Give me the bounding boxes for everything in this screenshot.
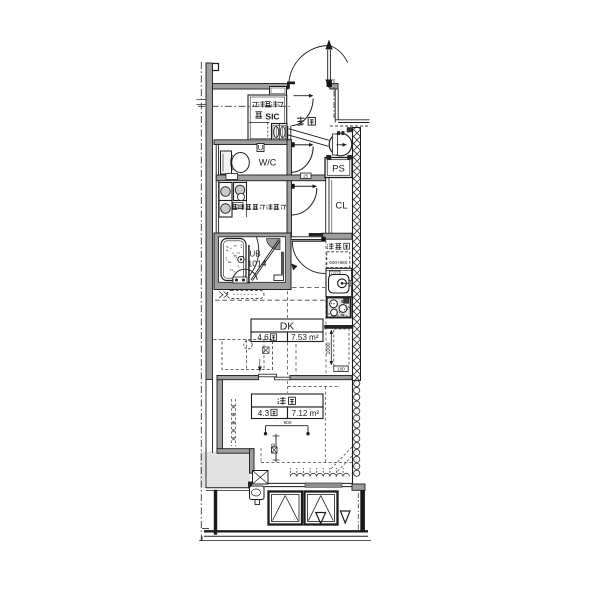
svg-text:7.12: 7.12 [292, 409, 308, 418]
svg-text:900: 900 [283, 420, 291, 426]
svg-text:100: 100 [337, 367, 345, 372]
svg-text:600×660: 600×660 [329, 260, 347, 265]
svg-text:PS: PS [332, 164, 345, 175]
svg-text:4.3: 4.3 [258, 409, 270, 418]
svg-text:25: 25 [303, 174, 308, 179]
svg-text:DK: DK [280, 321, 295, 333]
svg-text:SIC: SIC [265, 112, 279, 122]
svg-text:4.6: 4.6 [257, 333, 269, 342]
svg-text:1000: 1000 [326, 342, 332, 354]
svg-text:m²: m² [310, 409, 320, 418]
svg-text:CL: CL [335, 201, 347, 212]
svg-text:7.53: 7.53 [291, 333, 307, 342]
svg-text:m²: m² [309, 333, 319, 342]
svg-text:W/C: W/C [259, 158, 277, 168]
